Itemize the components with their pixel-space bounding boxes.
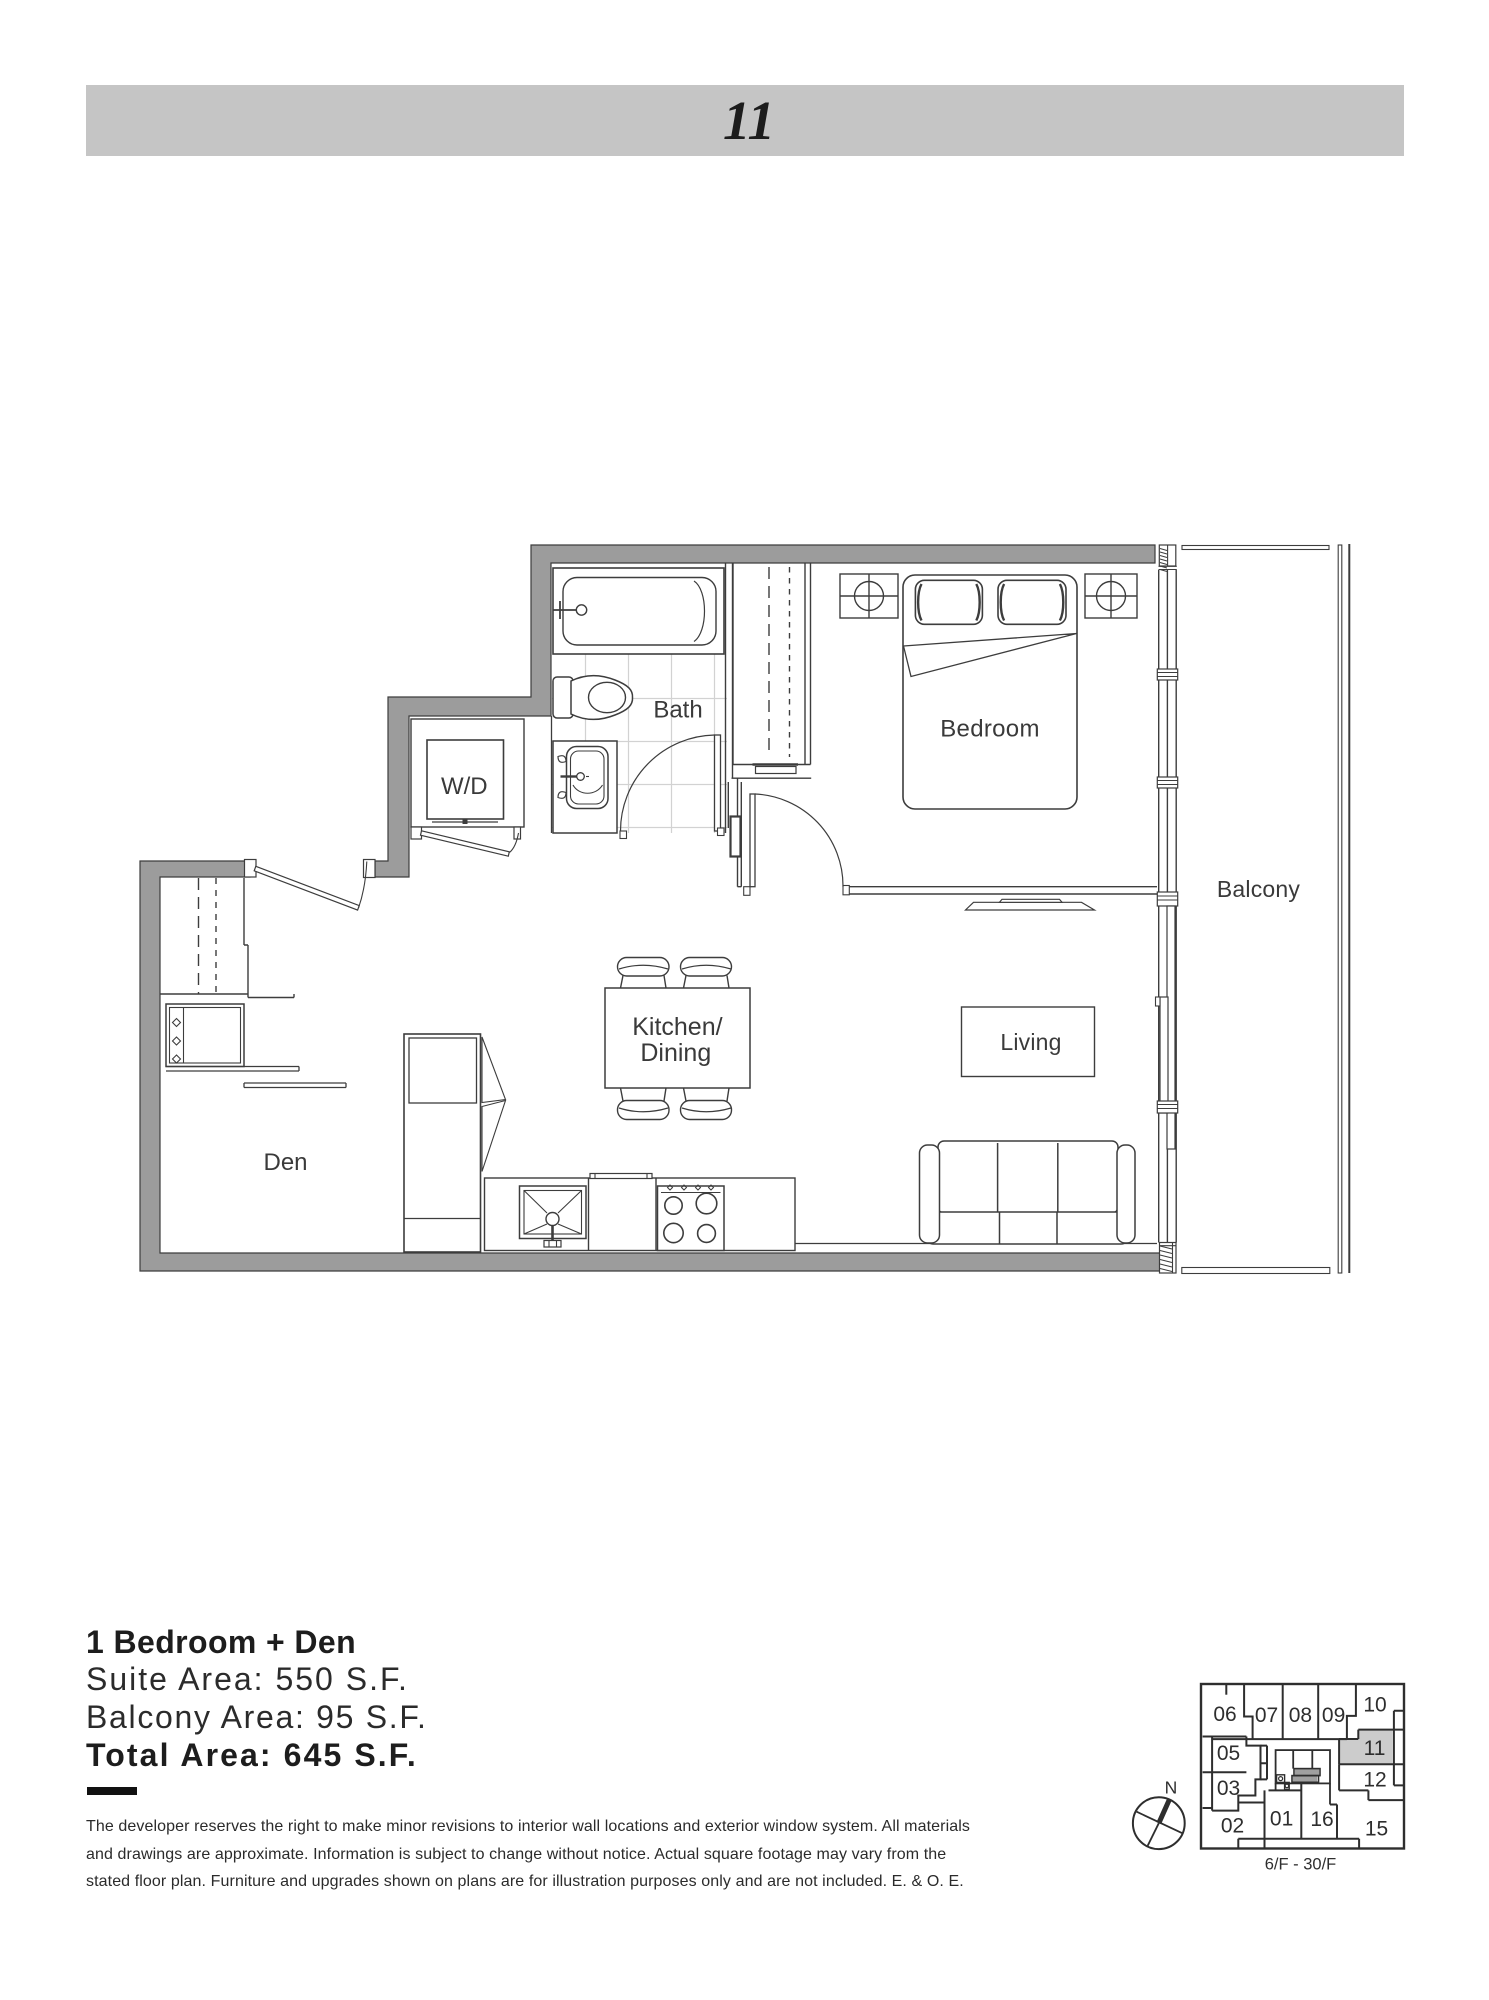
svg-text:Bedroom: Bedroom [940, 715, 1039, 742]
svg-text:01: 01 [1270, 1808, 1293, 1831]
svg-text:02: 02 [1221, 1815, 1244, 1838]
svg-text:Balcony: Balcony [1217, 876, 1301, 902]
svg-text:03: 03 [1217, 1777, 1240, 1800]
svg-text:Bath: Bath [653, 696, 702, 723]
svg-text:11: 11 [1364, 1737, 1386, 1760]
svg-text:07: 07 [1255, 1704, 1278, 1727]
svg-text:08: 08 [1289, 1704, 1312, 1727]
svg-text:Living: Living [1000, 1029, 1061, 1055]
svg-text:N: N [1165, 1778, 1178, 1798]
svg-text:6/F - 30/F: 6/F - 30/F [1265, 1856, 1337, 1874]
svg-text:06: 06 [1213, 1703, 1236, 1726]
svg-text:Kitchen/: Kitchen/ [632, 1013, 722, 1041]
svg-text:Den: Den [263, 1149, 307, 1176]
svg-text:W/D: W/D [441, 773, 488, 800]
svg-text:16: 16 [1310, 1808, 1333, 1831]
svg-text:09: 09 [1322, 1704, 1345, 1727]
svg-text:12: 12 [1363, 1769, 1386, 1792]
svg-text:15: 15 [1365, 1817, 1388, 1840]
svg-text:10: 10 [1363, 1694, 1386, 1717]
svg-text:05: 05 [1217, 1742, 1240, 1765]
svg-text:Dining: Dining [640, 1039, 711, 1067]
